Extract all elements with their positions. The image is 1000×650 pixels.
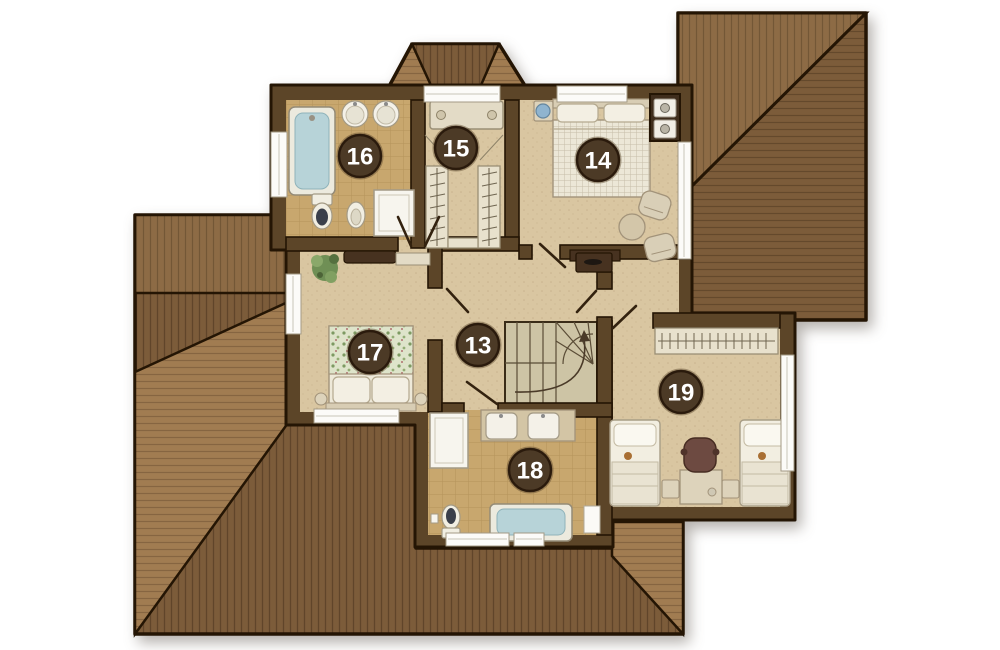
room-label: 13	[465, 333, 492, 360]
room-label: 16	[347, 144, 374, 171]
room-badge-17: 17	[347, 329, 393, 375]
console-table-icon	[576, 253, 612, 272]
teddy-icon	[758, 452, 766, 460]
window	[446, 533, 509, 546]
room-label: 19	[668, 380, 695, 407]
window	[514, 533, 544, 546]
wardrobe-rail-icon	[655, 328, 778, 354]
room-badge-19: 19	[658, 369, 704, 415]
single-bed-icon	[610, 420, 660, 506]
towel-cabinet-icon	[584, 506, 600, 533]
room-label: 18	[517, 458, 544, 485]
shelf-icon	[396, 253, 430, 265]
wardrobe-bottom-shelf	[448, 238, 478, 248]
nightstand-icon	[662, 480, 679, 498]
bidet-icon	[347, 202, 365, 228]
window	[286, 274, 301, 334]
chimney-icon	[650, 94, 680, 141]
teddy-icon	[624, 452, 632, 460]
round-table-icon	[619, 214, 645, 240]
room-badge-16: 16	[337, 133, 383, 179]
plan-drawing: 13 14 15 16	[135, 13, 866, 634]
shower-icon	[374, 190, 414, 236]
room-label: 14	[585, 148, 612, 175]
window	[678, 142, 691, 259]
desk-chair-icon	[681, 438, 720, 472]
window	[271, 132, 287, 197]
dresser-bench	[430, 101, 503, 129]
double-sink-counter	[481, 410, 575, 441]
roof-right-wing	[678, 13, 866, 320]
room-label: 15	[443, 136, 470, 163]
wardrobe-rail-icon	[478, 166, 500, 248]
staircase	[505, 322, 597, 404]
sideboard-icon	[344, 251, 396, 263]
round-sink-icon	[342, 101, 368, 127]
room-badge-15: 15	[433, 125, 479, 171]
window	[424, 86, 500, 102]
floor-plan: 13 14 15 16	[0, 0, 1000, 650]
room-badge-14: 14	[575, 137, 621, 183]
wall-box-icon	[431, 514, 438, 523]
bathtub-icon	[289, 107, 335, 195]
desk-icon	[680, 470, 722, 504]
shower-icon	[430, 413, 468, 468]
nightstand-icon	[534, 101, 553, 121]
round-sink-icon	[373, 101, 399, 127]
room-label: 17	[357, 340, 384, 367]
nightstand-icon	[722, 480, 739, 498]
room-badge-18: 18	[507, 447, 553, 493]
window	[781, 355, 794, 471]
room-badge-13: 13	[455, 322, 501, 368]
toilet-icon	[312, 194, 332, 229]
window	[314, 409, 399, 423]
window	[557, 86, 627, 102]
